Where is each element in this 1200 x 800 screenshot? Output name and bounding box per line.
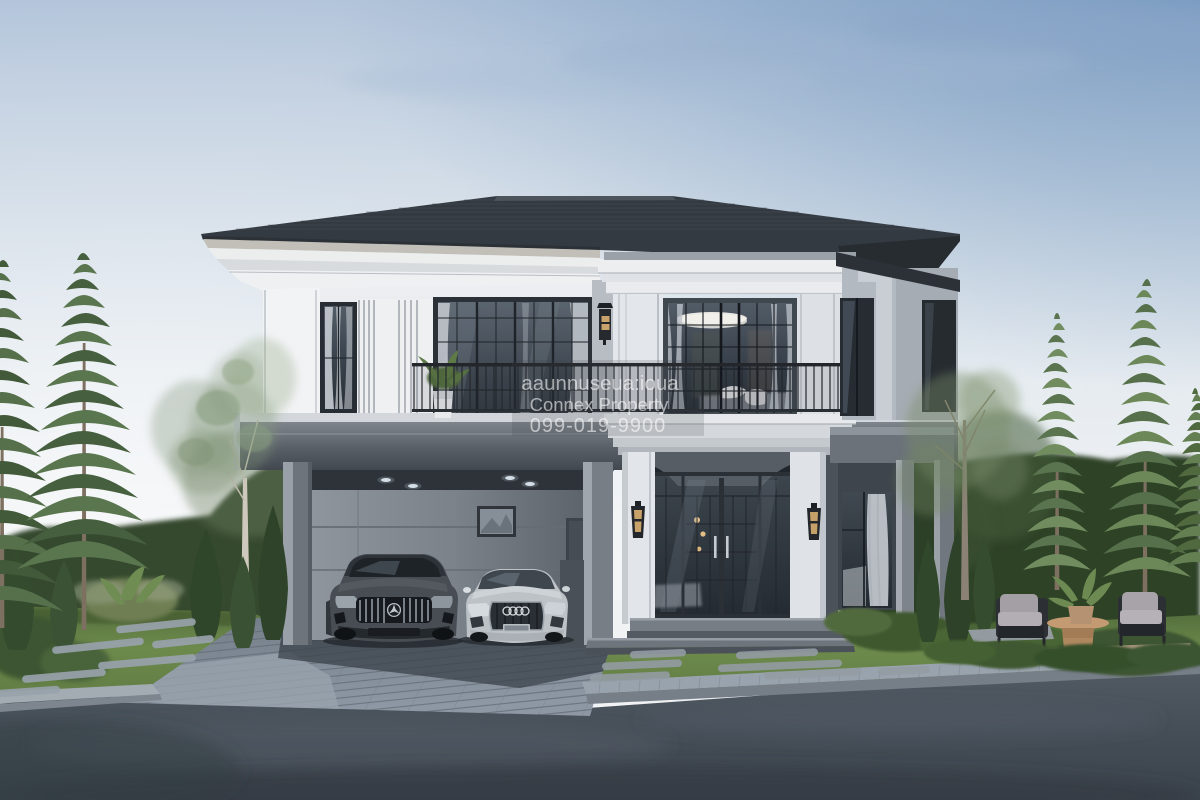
svg-text:Connex Property: Connex Property [530, 394, 670, 415]
svg-text:aaunnuseua:ioua: aaunnuseua:ioua [521, 372, 679, 395]
svg-text:099-019-9900: 099-019-9900 [530, 415, 667, 437]
